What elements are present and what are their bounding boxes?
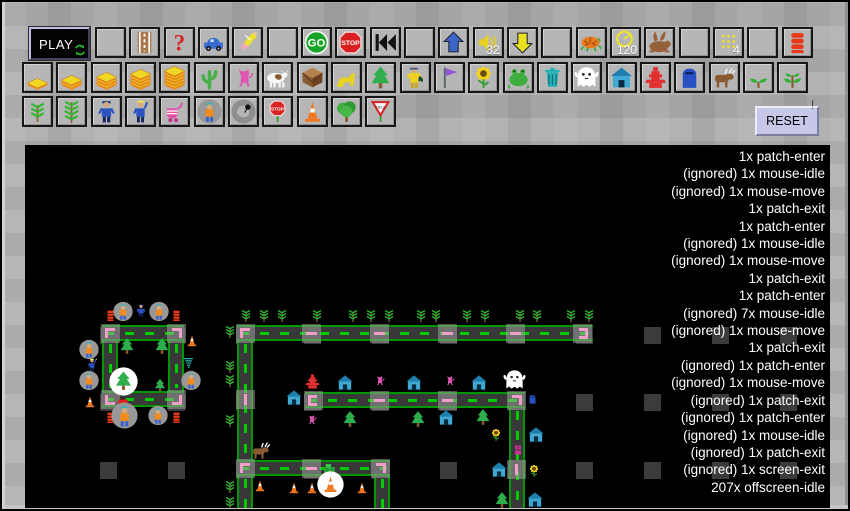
svg-text:STOP: STOP [271, 106, 285, 112]
pine-button[interactable] [365, 62, 396, 93]
cone-sprite[interactable] [253, 477, 267, 494]
cone-sprite[interactable] [83, 393, 97, 410]
house-sprite[interactable] [470, 373, 488, 392]
wheat-sprite[interactable] [238, 305, 254, 326]
dots-button[interactable]: 4 [713, 27, 744, 58]
wheat-sprite[interactable] [477, 305, 493, 326]
patch-cell [440, 462, 457, 479]
layers-1-button[interactable] [22, 62, 53, 93]
rabbit-button[interactable] [644, 27, 675, 58]
yield-sign-button[interactable]: YIELD [365, 96, 396, 127]
frog-button[interactable] [503, 62, 534, 93]
trashcan-button[interactable] [537, 62, 568, 93]
cat-sprite[interactable] [373, 371, 386, 390]
pine-sprite[interactable] [409, 409, 427, 429]
cone-button[interactable] [297, 96, 328, 127]
whirl-sprite[interactable] [182, 355, 195, 371]
arrow-down-button[interactable] [507, 27, 538, 58]
wheat-sprite[interactable] [581, 305, 597, 326]
wheat-sprite[interactable] [363, 305, 379, 326]
cone-sprite[interactable] [287, 479, 301, 496]
empty-button[interactable] [679, 27, 710, 58]
app-window: PLAY ?GOSTOP321204STOPYIELD RESET ! 1x p… [0, 0, 850, 511]
gauge-button[interactable]: 120 [610, 27, 641, 58]
log-line: (ignored) 1x mouse-move [671, 322, 825, 339]
wheat-sprite[interactable] [529, 305, 545, 326]
cone-circle-sprite[interactable] [317, 471, 344, 498]
pine-sprite[interactable] [153, 336, 171, 356]
sprout-sm-button[interactable] [743, 62, 774, 93]
road-marker-dash-h [302, 324, 321, 343]
svg-text:GO: GO [308, 38, 326, 50]
road-marker-dash-v [236, 390, 255, 409]
stop-button[interactable]: STOP [335, 27, 366, 58]
wheat-sprite[interactable] [222, 410, 238, 431]
log-line: (ignored) 1x mouse-idle [671, 165, 825, 182]
road-marker-dash-h [438, 324, 457, 343]
flag-button[interactable] [434, 62, 465, 93]
road-marker-dash-h [370, 324, 389, 343]
log-line: (ignored) 1x patch-exit [671, 444, 825, 461]
road-segment [237, 325, 593, 341]
log-line: (ignored) 1x screen-exit [671, 461, 825, 478]
layers-2-button[interactable] [56, 62, 87, 93]
tree-circle-sprite[interactable] [109, 367, 138, 396]
cone-sprite[interactable] [355, 479, 369, 496]
road-marker-end-right [573, 324, 592, 343]
play-label: PLAY [39, 37, 73, 52]
car-blue-button[interactable] [198, 27, 229, 58]
fisherman-button[interactable] [400, 62, 431, 93]
worker-circle-sprite[interactable] [181, 370, 201, 391]
arrow-up-button[interactable] [438, 27, 469, 58]
road-marker-dash-v [507, 460, 526, 479]
log-line: (ignored) 7x mouse-idle [671, 305, 825, 322]
speaker-button[interactable]: 32 [473, 27, 504, 58]
wheat-sprite[interactable] [222, 370, 238, 391]
empty-button[interactable] [95, 27, 126, 58]
empty-button[interactable] [404, 27, 435, 58]
road-marker-dash-h [506, 324, 525, 343]
patch-cell [644, 394, 661, 411]
police-sprite[interactable] [134, 299, 148, 322]
sunflower-button[interactable] [468, 62, 499, 93]
mailbox-sprite[interactable] [527, 390, 538, 408]
mailbox-button[interactable] [674, 62, 705, 93]
cone-sprite[interactable] [305, 479, 319, 496]
wheat-sprite[interactable] [256, 305, 272, 326]
hydrant-button[interactable] [640, 62, 671, 93]
log-line: (ignored) 1x mouse-idle [671, 427, 825, 444]
patch-cell [576, 394, 593, 411]
log-line: 1x patch-enter [671, 148, 825, 165]
cow-button[interactable] [262, 62, 293, 93]
cone-sprite[interactable] [185, 332, 199, 349]
road-segment [237, 476, 253, 508]
svg-text:?: ? [173, 30, 184, 55]
empty-button[interactable] [541, 27, 572, 58]
log-line: (ignored) 1x patch-exit [671, 392, 825, 409]
wheat-sprite[interactable] [459, 305, 475, 326]
log-line: 1x patch-enter [671, 287, 825, 304]
wheat-sprite[interactable] [563, 305, 579, 326]
road-marker-dash-h [370, 391, 389, 410]
play-button[interactable]: PLAY [29, 27, 90, 60]
worker-circle-sprite[interactable] [113, 301, 133, 322]
moose-sprite[interactable] [250, 440, 272, 461]
layers-4-button[interactable] [125, 62, 156, 93]
crate-button[interactable] [297, 62, 328, 93]
stop-sign-button[interactable]: STOP [262, 96, 293, 127]
house-sprite[interactable] [405, 373, 423, 392]
log-line: (ignored) 1x mouse-idle [671, 235, 825, 252]
pine-sm-sprite[interactable] [153, 377, 167, 393]
worker-circle-sprite[interactable] [79, 370, 99, 391]
barrel-sprite[interactable] [170, 307, 183, 324]
log-line: 1x patch-exit [671, 270, 825, 287]
reset-button[interactable]: RESET [755, 106, 819, 136]
worker-circle-lg-sprite[interactable] [111, 402, 138, 429]
wheat-button[interactable] [22, 96, 53, 127]
reset-note: ! [811, 98, 814, 112]
patch-cell [576, 462, 593, 479]
house-sprite[interactable] [285, 388, 303, 407]
police-button[interactable] [91, 96, 122, 127]
road-tile-button[interactable] [129, 27, 160, 58]
barrel-sprite[interactable] [170, 409, 183, 426]
house-sprite[interactable] [336, 373, 354, 392]
log-line: (ignored) 1x patch-enter [671, 409, 825, 426]
layers-5-button[interactable] [159, 62, 190, 93]
empty-button[interactable] [267, 27, 298, 58]
log-line: (ignored) 1x patch-enter [671, 357, 825, 374]
ghost-button[interactable] [571, 62, 602, 93]
pencil-button[interactable] [232, 27, 263, 58]
worker-circle-sprite[interactable] [149, 301, 169, 322]
cat-button[interactable] [228, 62, 259, 93]
sunflower-sprite[interactable] [489, 424, 503, 446]
sunflower-sprite[interactable] [527, 460, 541, 482]
log-line: 1x patch-exit [671, 200, 825, 217]
wheat-sprite[interactable] [222, 321, 238, 342]
cat-sprite[interactable] [305, 410, 318, 429]
person-wave-button[interactable] [125, 96, 156, 127]
cycle-icon [73, 43, 87, 57]
patch-cell [100, 462, 117, 479]
patch-cell [644, 462, 661, 479]
road-segment [305, 392, 525, 408]
house-sprite[interactable] [437, 408, 455, 427]
pink-cart-sprite[interactable] [512, 441, 524, 459]
layers-3-button[interactable] [91, 62, 122, 93]
reset-label: RESET [766, 114, 808, 128]
road-marker-corner-tl [236, 459, 255, 478]
wheat-lg-button[interactable] [56, 96, 87, 127]
event-log: 1x patch-enter(ignored) 1x mouse-idle(ig… [671, 148, 825, 496]
house-button[interactable] [606, 62, 637, 93]
wheat-sprite[interactable] [309, 305, 325, 326]
road-marker-corner-tr [371, 459, 390, 478]
go-button[interactable]: GO [301, 27, 332, 58]
question-button[interactable]: ? [164, 27, 195, 58]
road-marker-corner-br [167, 390, 186, 409]
pine-sprite[interactable] [493, 490, 511, 508]
pine-sprite[interactable] [118, 336, 136, 356]
moose-sprite[interactable] [250, 506, 272, 508]
moose-button[interactable] [709, 62, 740, 93]
log-line: (ignored) 1x mouse-move [671, 183, 825, 200]
wheat-sprite[interactable] [345, 305, 361, 326]
road-segment [374, 476, 390, 508]
house-sprite[interactable] [527, 425, 545, 444]
road-marker-corner-tl [236, 324, 255, 343]
empty-button[interactable] [747, 27, 778, 58]
wheat-sprite[interactable] [274, 305, 290, 326]
barrel-button[interactable] [782, 27, 813, 58]
patch-cell [168, 462, 185, 479]
house-sprite[interactable] [526, 490, 544, 508]
worker-circle-button[interactable] [194, 96, 225, 127]
log-line: 207x offscreen-idle [671, 479, 825, 496]
dog-button[interactable] [331, 62, 362, 93]
cactus-button[interactable] [194, 62, 225, 93]
wheat-sprite[interactable] [428, 305, 444, 326]
svg-text:STOP: STOP [342, 40, 361, 47]
wheat-sprite[interactable] [512, 305, 528, 326]
house-sprite[interactable] [490, 460, 508, 479]
tree-round-button[interactable] [331, 96, 362, 127]
turtle-button[interactable] [576, 27, 607, 58]
wheat-sprite[interactable] [222, 492, 238, 508]
rewind-button[interactable] [370, 27, 401, 58]
patch-cell [644, 327, 661, 344]
log-line: (ignored) 1x mouse-move [671, 252, 825, 269]
gray-blob-button[interactable] [228, 96, 259, 127]
cat-sprite[interactable] [443, 371, 456, 390]
wheat-sprite[interactable] [381, 305, 397, 326]
pine-sprite[interactable] [341, 409, 359, 429]
sprout-lg-button[interactable] [777, 62, 808, 93]
log-line: 1x patch-enter [671, 218, 825, 235]
stroller-button[interactable] [159, 96, 190, 127]
ghost-sprite[interactable] [503, 368, 526, 392]
hydrant-sprite[interactable] [304, 371, 321, 392]
worker-circle-sprite[interactable] [148, 405, 168, 426]
road-marker-end-left [304, 391, 323, 410]
svg-text:YIELD: YIELD [375, 105, 386, 109]
road-marker-corner-tr [507, 391, 526, 410]
log-line: 1x patch-exit [671, 339, 825, 356]
log-line: (ignored) 1x mouse-move [671, 374, 825, 391]
world-canvas[interactable]: 1x patch-enter(ignored) 1x mouse-idle(ig… [25, 145, 830, 508]
wheat-sprite[interactable] [413, 305, 429, 326]
